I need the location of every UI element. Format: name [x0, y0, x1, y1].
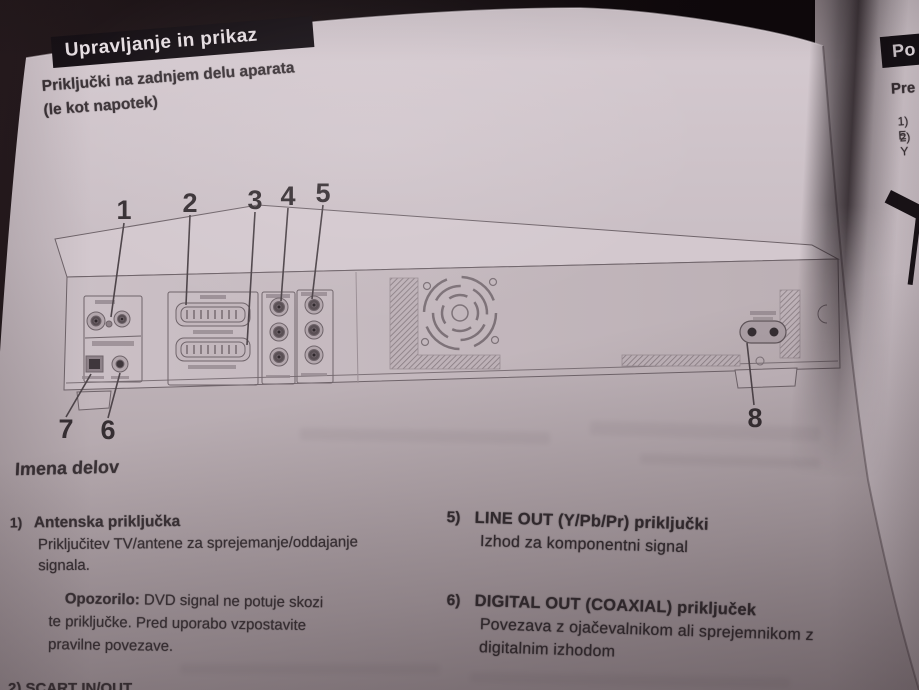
part-item-6: 6)DIGITAL OUT (COAXIAL) priključek Povez… [445, 589, 815, 670]
scart-upper-connector [176, 303, 250, 326]
rear-panel-diagram: 1 2 3 4 5 6 7 8 [35, 165, 845, 455]
antenna-out-jack [114, 311, 130, 327]
rca-jack [305, 296, 323, 314]
scart-lower-connector [176, 338, 250, 361]
device-body [55, 205, 840, 410]
warning-note: Opozorilo: DVD signal ne potuje skozi te… [48, 587, 323, 660]
callout-8: 8 [747, 403, 762, 433]
rca-jack [270, 348, 288, 366]
callout-6: 6 [100, 415, 115, 445]
rca-jack [270, 298, 288, 316]
part-item-1: 1)Antenska priključka Priključitev TV/an… [10, 509, 358, 577]
part-item-5: 5)LINE OUT (Y/Pb/Pr) priključki Izhod za… [446, 506, 709, 560]
callout-7: 7 [58, 414, 73, 444]
optical-out-jack [86, 356, 103, 372]
cut-off-text-line: 2) SCART IN/OUT [0, 679, 420, 690]
parts-heading: Imena delov [15, 457, 120, 480]
photo-of-manual-page: Po Pre 1) E 2) Y Upravljanje in prikaz P… [0, 0, 919, 690]
vent-grille-bottom [622, 355, 740, 366]
warning-line-3: pravilne povezave. [48, 633, 323, 660]
coaxial-out-jack [112, 356, 128, 372]
item-number: 1) [10, 512, 34, 534]
item-body-line: signala. [38, 552, 358, 576]
device-foot-right [735, 368, 797, 388]
callout-3: 3 [247, 185, 262, 215]
item-number: 5) [446, 506, 475, 530]
callout-2: 2 [182, 188, 197, 218]
callout-1: 1 [116, 195, 131, 225]
item-number: 6) [446, 589, 475, 613]
callout-4: 4 [280, 181, 295, 211]
rca-jack [305, 346, 323, 364]
warning-line-1: DVD signal ne potuje skozi [140, 591, 324, 611]
item-body-line: Priključitev TV/antene za sprejemanje/od… [38, 531, 358, 555]
rca-jack [305, 321, 323, 339]
rca-jack [270, 323, 288, 341]
cut-off-text: 2) SCART IN/OUT [8, 679, 420, 690]
item-title: Antenska priključka [34, 513, 181, 531]
warning-label: Opozorilo: [65, 590, 140, 608]
callout-5: 5 [315, 178, 330, 208]
antenna-in-jack [87, 312, 105, 330]
device-foot-left [77, 391, 111, 410]
antenna-mini-jack [106, 321, 112, 327]
